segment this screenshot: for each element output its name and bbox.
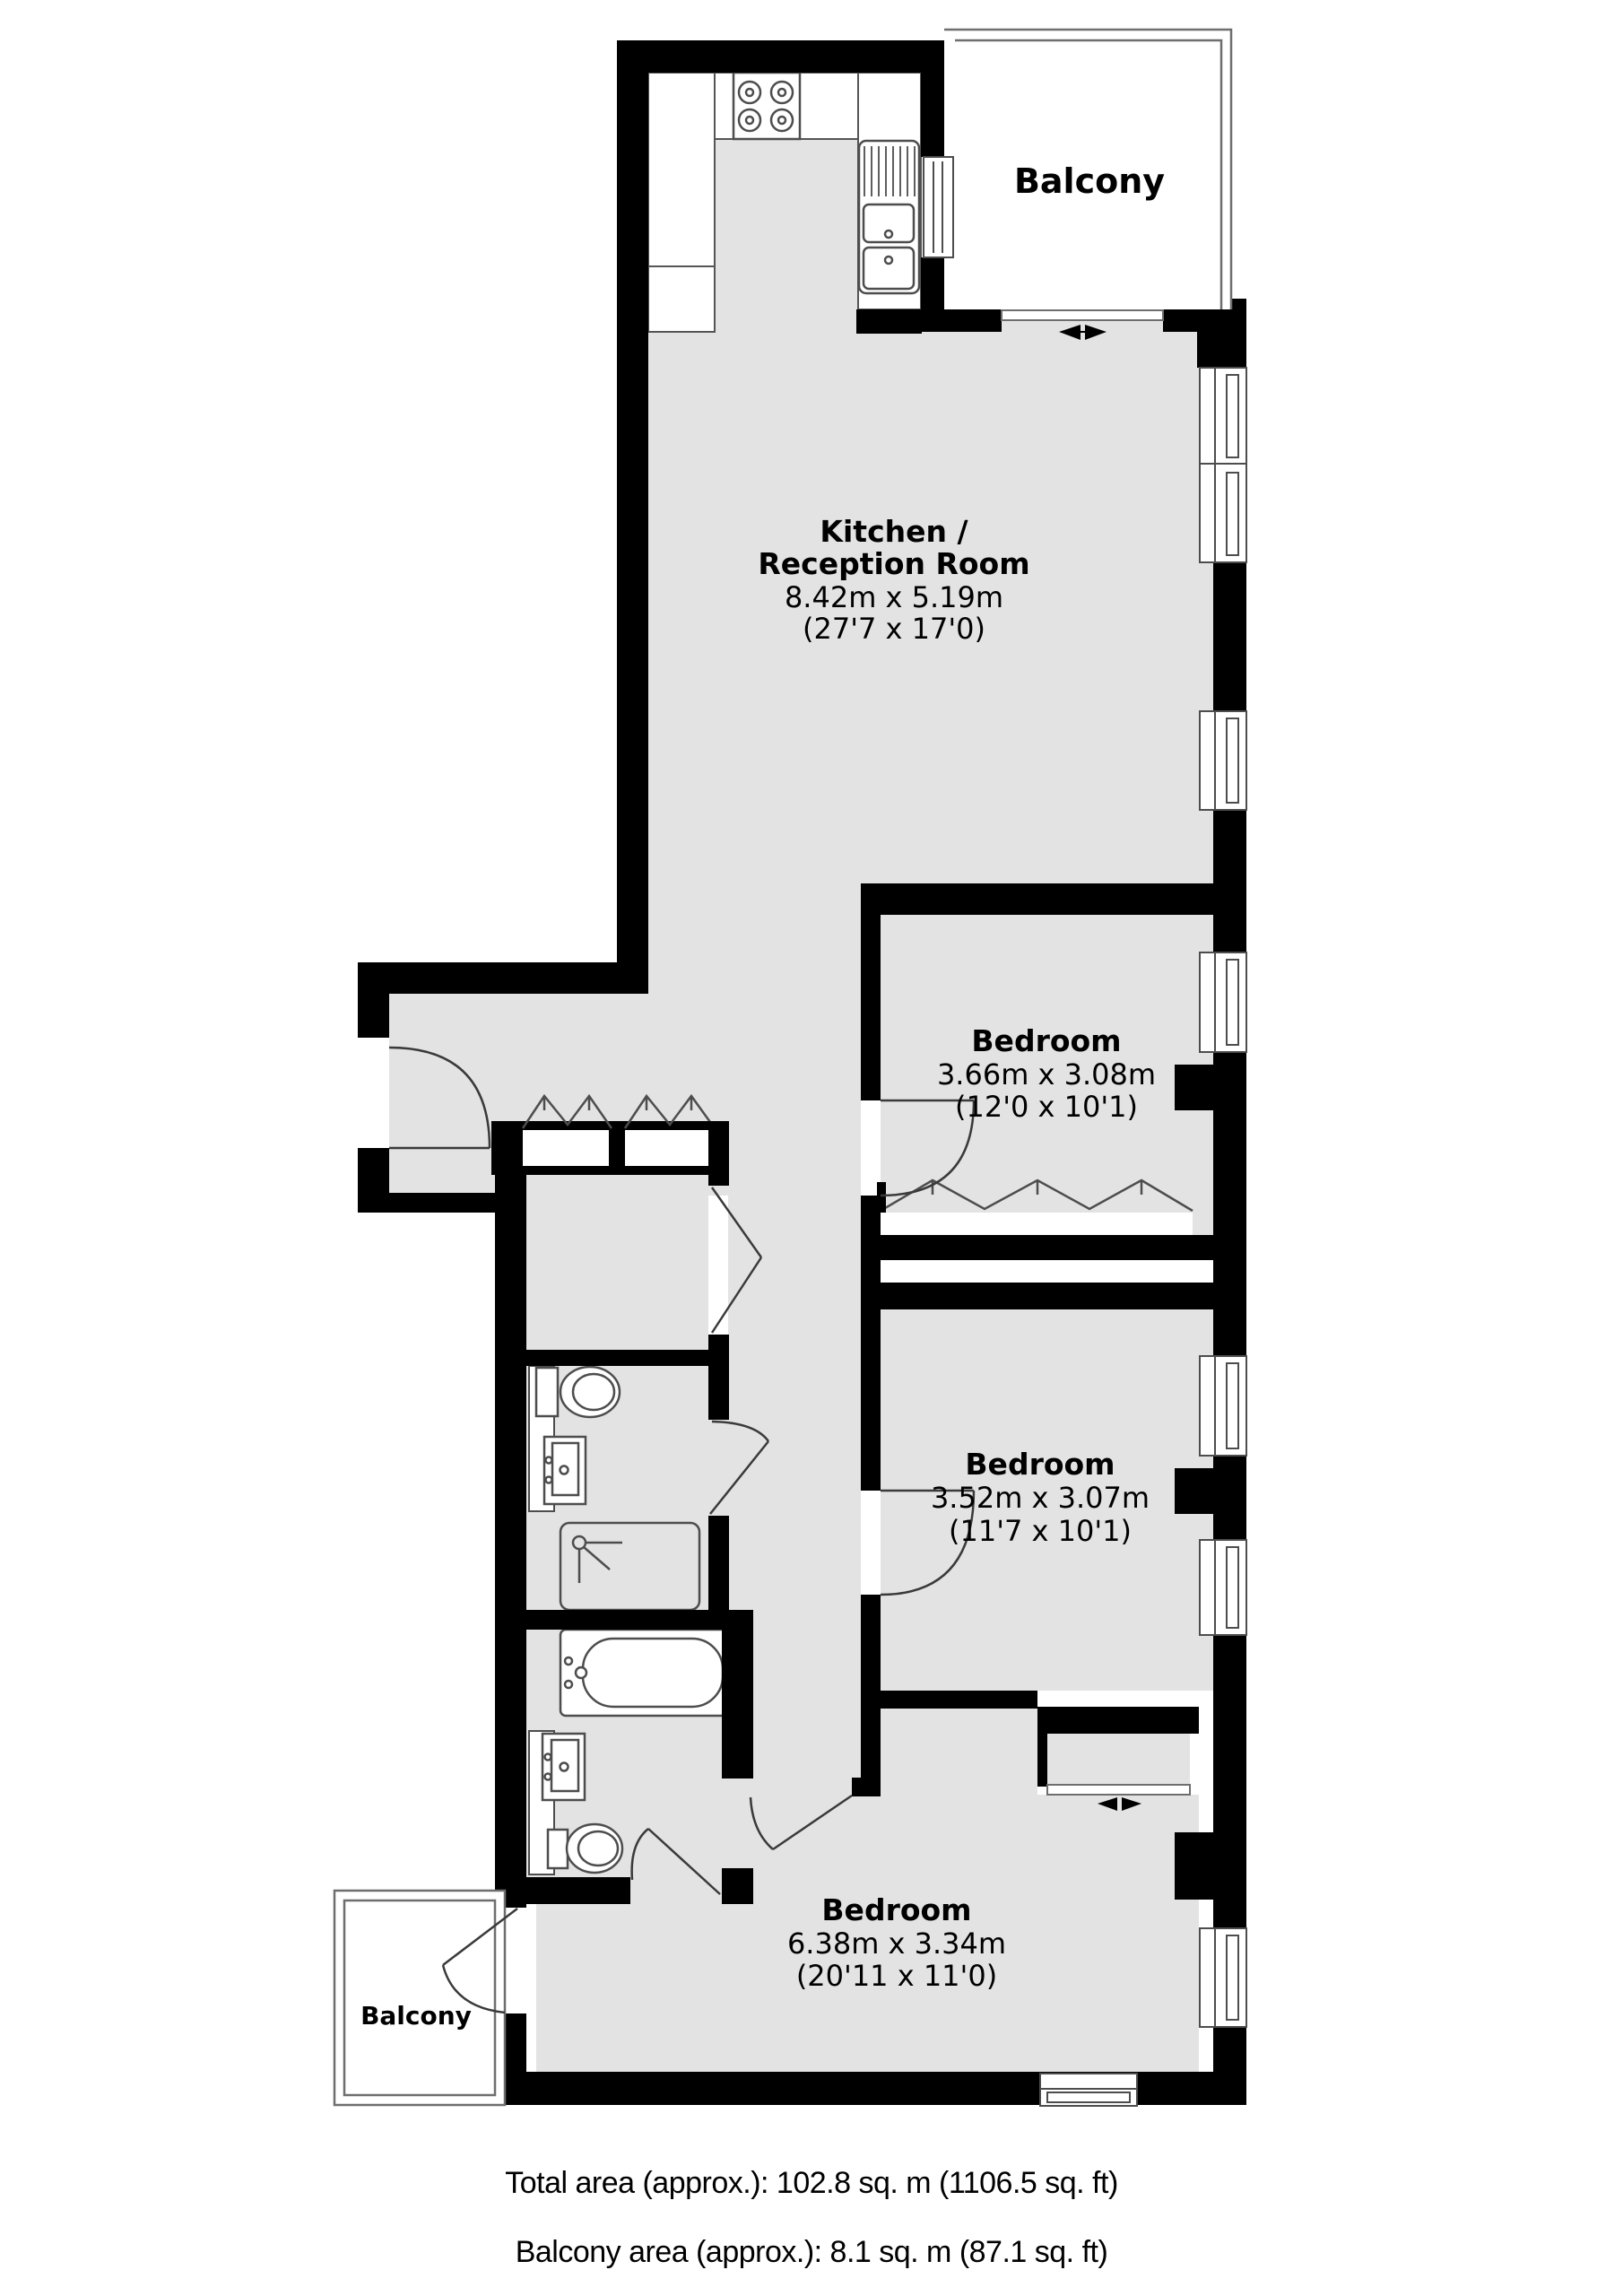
- footer: Total area (approx.): 102.8 sq. m (1106.…: [505, 2166, 1118, 2269]
- window-icon: [1200, 952, 1246, 1052]
- counter-sink-column: [858, 73, 921, 309]
- bedroom3-dim-imperial: (20'11 x 11'0): [796, 1959, 997, 1993]
- hob-icon: [733, 73, 800, 139]
- total-area-text: Total area (approx.): 102.8 sq. m (1106.…: [505, 2166, 1118, 2200]
- window-icon: [1040, 2074, 1137, 2106]
- bedroom1-label: Bedroom: [971, 1023, 1121, 1058]
- floor-plan-page: Kitchen / Reception Room 8.42m x 5.19m (…: [0, 0, 1623, 2296]
- bedroom2-dim-metric: 3.52m x 3.07m: [931, 1481, 1150, 1515]
- counter-left: [648, 73, 715, 332]
- washbasin-icon: [544, 1437, 586, 1504]
- kitchen-dim-metric: 8.42m x 5.19m: [785, 580, 1003, 614]
- window-icon: [1200, 1928, 1246, 2027]
- balcony-bottom-label: Balcony: [360, 2001, 472, 2031]
- washbasin-icon: [542, 1734, 585, 1800]
- window-icon: [1200, 1540, 1246, 1635]
- balcony-top-label: Balcony: [1014, 161, 1165, 201]
- kitchen-label-line1: Kitchen /: [820, 514, 968, 549]
- bedroom2-dim-imperial: (11'7 x 10'1): [949, 1514, 1132, 1548]
- window-icon: [1200, 711, 1246, 810]
- balcony-area-text: Balcony area (approx.): 8.1 sq. m (87.1 …: [516, 2235, 1108, 2269]
- bedroom3-dim-metric: 6.38m x 3.34m: [787, 1926, 1006, 1961]
- floor-plan: Kitchen / Reception Room 8.42m x 5.19m (…: [0, 0, 1623, 2296]
- bedroom1-dim-metric: 3.66m x 3.08m: [937, 1057, 1156, 1091]
- window-icon: [1200, 1356, 1246, 1456]
- toilet-icon: [548, 1824, 622, 1873]
- bedroom2-label: Bedroom: [965, 1447, 1115, 1482]
- balcony-bottom: [334, 1891, 505, 2105]
- closet-box: [523, 1130, 609, 1166]
- bedroom3-label: Bedroom: [821, 1892, 971, 1927]
- window-icon: [1200, 368, 1246, 562]
- closet-box: [625, 1130, 713, 1166]
- window-icon: [924, 157, 953, 257]
- kitchen-dim-imperial: (27'7 x 17'0): [803, 612, 985, 646]
- bathtub-icon: [560, 1630, 731, 1716]
- toilet-icon: [536, 1367, 620, 1417]
- bedroom1-dim-imperial: (12'0 x 10'1): [955, 1090, 1138, 1124]
- kitchen-label-line2: Reception Room: [758, 546, 1029, 581]
